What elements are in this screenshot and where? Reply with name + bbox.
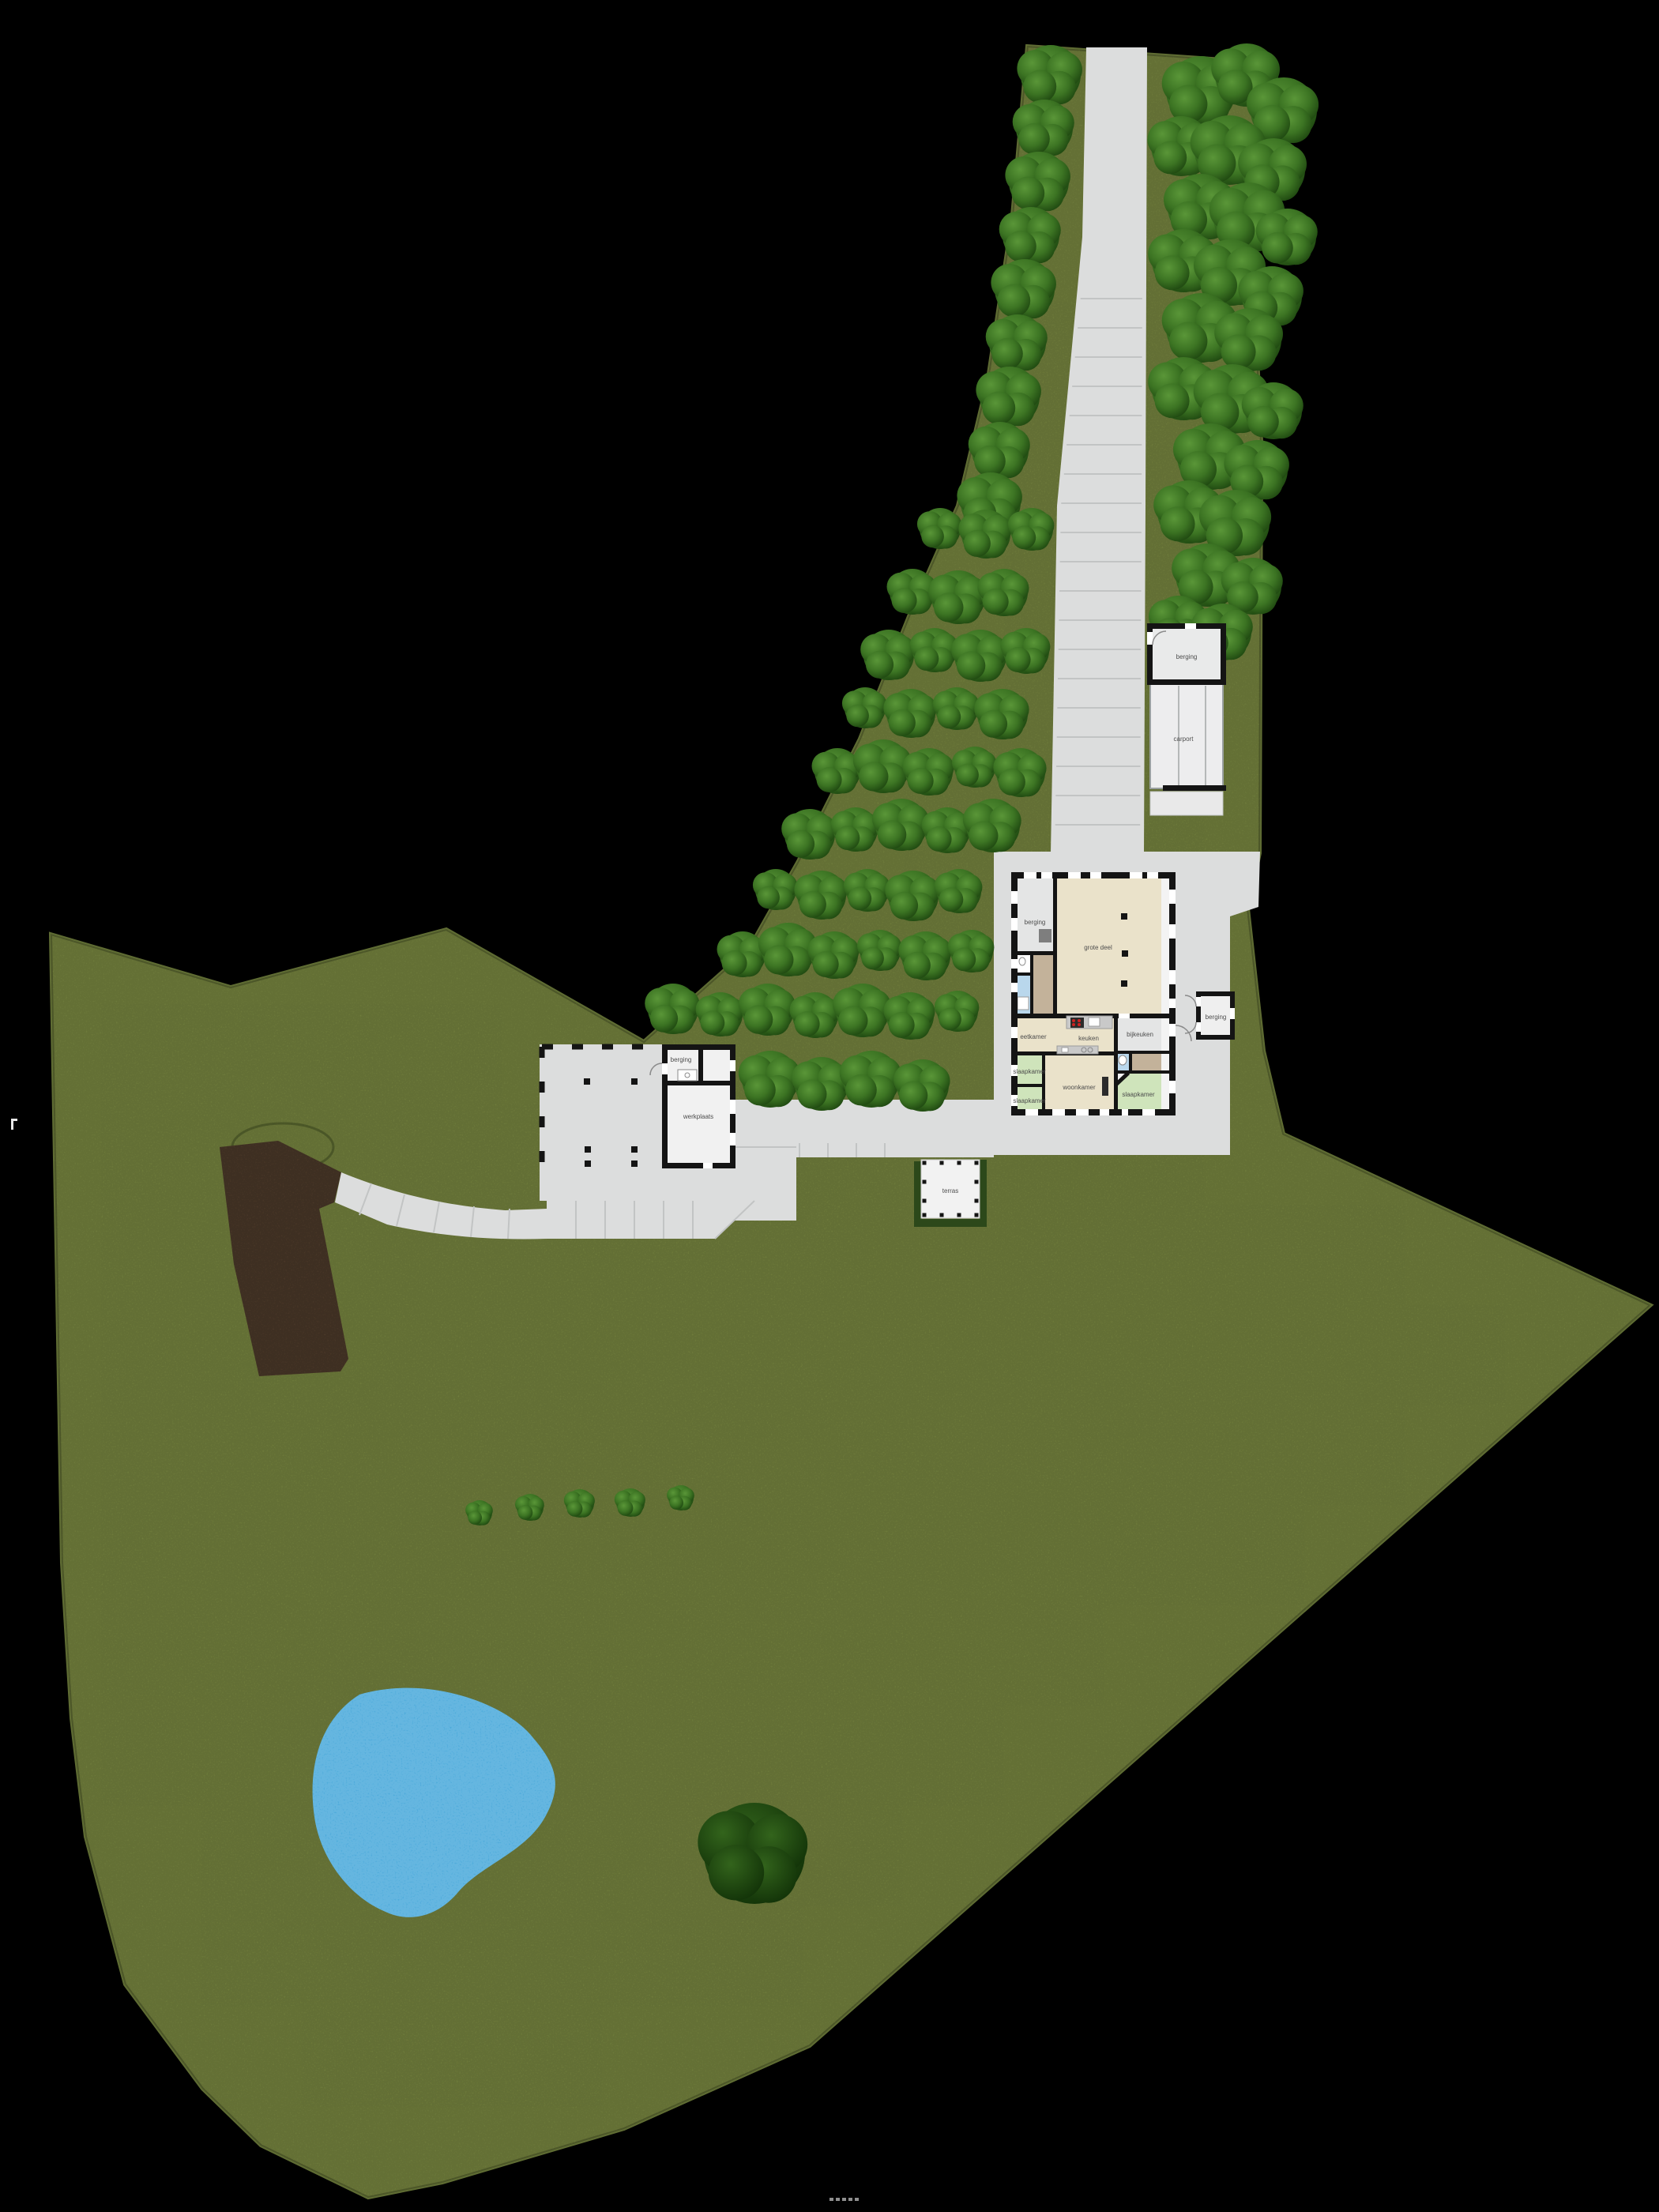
stove-fixture	[1070, 1018, 1084, 1028]
site-plan-canvas: berging carport werkplaats berging terra…	[0, 0, 1659, 2212]
tree	[844, 869, 890, 912]
tree	[999, 207, 1061, 264]
tree	[753, 869, 797, 910]
tree	[902, 748, 954, 796]
tree	[977, 569, 1029, 616]
barn-window-2	[730, 1100, 735, 1114]
utility-box	[1039, 929, 1051, 942]
bottom-marker	[848, 2198, 852, 2201]
annex-door-gap-1	[1196, 997, 1201, 1006]
tree	[1005, 152, 1070, 212]
tree	[667, 1485, 694, 1510]
storage-door-gap	[1147, 632, 1153, 645]
toilet-fixture	[1119, 1055, 1127, 1065]
annex-label: berging	[1206, 1014, 1227, 1021]
tree	[840, 1051, 901, 1108]
tree	[991, 259, 1055, 319]
annex-door-gap-2	[1196, 1022, 1201, 1032]
house-wall-left	[1011, 872, 1018, 1115]
door-gap-main-h	[1119, 1014, 1130, 1018]
tree	[893, 1059, 950, 1112]
chimney-fixture	[1102, 1077, 1108, 1096]
burner-1	[1072, 1019, 1075, 1022]
tree	[794, 871, 847, 920]
barn-room-label: werkplaats	[683, 1113, 713, 1120]
tree	[951, 630, 1008, 682]
bottom-marker	[855, 2198, 859, 2201]
wall-garage-barn	[1053, 878, 1057, 1014]
tree	[933, 687, 980, 730]
tree	[986, 314, 1048, 371]
barn-door-gap-bottom	[703, 1163, 713, 1168]
tree	[917, 508, 961, 549]
carport-extension	[1150, 792, 1223, 815]
bedroom-b-label: slaapkamer	[1013, 1097, 1046, 1104]
barn-wall-left	[662, 1044, 668, 1168]
burner-2	[1078, 1019, 1081, 1022]
tree	[958, 510, 1011, 559]
tree	[952, 747, 996, 788]
tree	[969, 422, 1030, 479]
tree	[812, 748, 862, 794]
tree	[698, 1803, 807, 1904]
tree	[645, 984, 699, 1034]
wall-bedroomC-top	[1114, 1070, 1173, 1074]
tree	[898, 931, 951, 980]
tree	[872, 799, 929, 851]
bedroom-c-label: slaapkamer	[1122, 1091, 1155, 1098]
bottom-marker	[842, 2198, 846, 2201]
barn-hall-label: grote deel	[1084, 944, 1112, 951]
kitchen-sink	[1089, 1018, 1100, 1026]
wall-hall-left	[1030, 955, 1033, 1015]
tree	[1013, 100, 1074, 156]
shower-fixture	[1018, 997, 1029, 1010]
tree	[910, 628, 958, 672]
storage-window	[1185, 623, 1196, 629]
storage-wall-right	[1221, 623, 1226, 685]
pergola: terras	[918, 1160, 983, 1223]
storage-wall-bottom	[1147, 679, 1226, 685]
wall-right-top	[1114, 1051, 1173, 1054]
tree	[860, 630, 915, 680]
tree	[833, 984, 891, 1037]
tree	[935, 991, 979, 1032]
garage-label: berging	[1025, 919, 1046, 926]
tree	[948, 930, 995, 972]
tree	[976, 367, 1040, 427]
tree	[883, 992, 935, 1040]
tree	[842, 687, 886, 728]
barn-storage-label: berging	[671, 1056, 692, 1063]
burner-3	[1072, 1023, 1075, 1026]
tree	[1256, 209, 1318, 265]
tree	[790, 992, 840, 1038]
dining-label: eetkamer	[1020, 1033, 1047, 1040]
tree	[792, 1057, 850, 1111]
left-edge-marker	[11, 1119, 13, 1130]
bottom-marker	[829, 2198, 833, 2201]
wall-garage-bottom	[1014, 951, 1055, 955]
bedroom-a-label: slaapkamer	[1013, 1068, 1046, 1075]
tree	[857, 930, 901, 971]
room-hall-tan	[1033, 955, 1053, 1015]
tree	[739, 984, 796, 1036]
toilet-fixture-2	[1019, 957, 1025, 965]
tree	[465, 1500, 493, 1525]
barn-window-3	[730, 1133, 735, 1145]
tree	[1017, 45, 1082, 105]
sink-fixture	[678, 1070, 697, 1081]
tree	[717, 931, 767, 977]
tree	[739, 1051, 800, 1108]
tree	[1242, 382, 1303, 439]
tree	[928, 570, 987, 624]
main-house: berging grote deel eetkamer keuken bijke…	[1011, 872, 1191, 1115]
tree	[781, 809, 836, 860]
burner-4	[1078, 1023, 1081, 1026]
tree	[883, 689, 936, 738]
house-wall-right	[1169, 872, 1176, 1115]
north-building: berging carport	[1147, 623, 1226, 815]
tree	[885, 871, 939, 921]
barn-partition-v	[698, 1044, 703, 1085]
tree	[831, 807, 879, 852]
tree	[1001, 628, 1051, 674]
barn-door-gap-left	[662, 1063, 668, 1074]
tree	[1008, 508, 1055, 551]
bottom-marker	[836, 2198, 840, 2201]
annex-window	[1230, 1008, 1235, 1019]
carport-label: carport	[1174, 735, 1194, 743]
island-sink	[1062, 1048, 1068, 1052]
room-hall2-tan	[1132, 1054, 1161, 1070]
tree	[935, 869, 983, 913]
tree	[974, 689, 1029, 739]
pergola-label: terras	[942, 1187, 958, 1194]
utility-label: bijkeuken	[1127, 1031, 1153, 1038]
tree	[993, 748, 1046, 797]
carport-wall-bottom	[1163, 785, 1226, 791]
barn-wall-bottom	[662, 1163, 735, 1168]
tree	[515, 1494, 544, 1521]
storage-label: berging	[1176, 653, 1198, 660]
kitchen-label: keuken	[1078, 1035, 1099, 1042]
tree	[615, 1488, 645, 1517]
wall-bedrooms-h	[1014, 1084, 1042, 1087]
wall-wc2	[1129, 1052, 1132, 1073]
tree	[922, 807, 972, 853]
tree	[564, 1489, 595, 1518]
tree	[696, 992, 744, 1036]
living-label: woonkamer	[1062, 1084, 1096, 1091]
tree	[1214, 308, 1283, 371]
tree	[963, 799, 1021, 852]
barn-window-1	[730, 1060, 735, 1071]
wall-main-v	[1114, 1018, 1118, 1114]
tree	[807, 931, 859, 979]
wall-bedrooms-v	[1042, 1055, 1045, 1114]
